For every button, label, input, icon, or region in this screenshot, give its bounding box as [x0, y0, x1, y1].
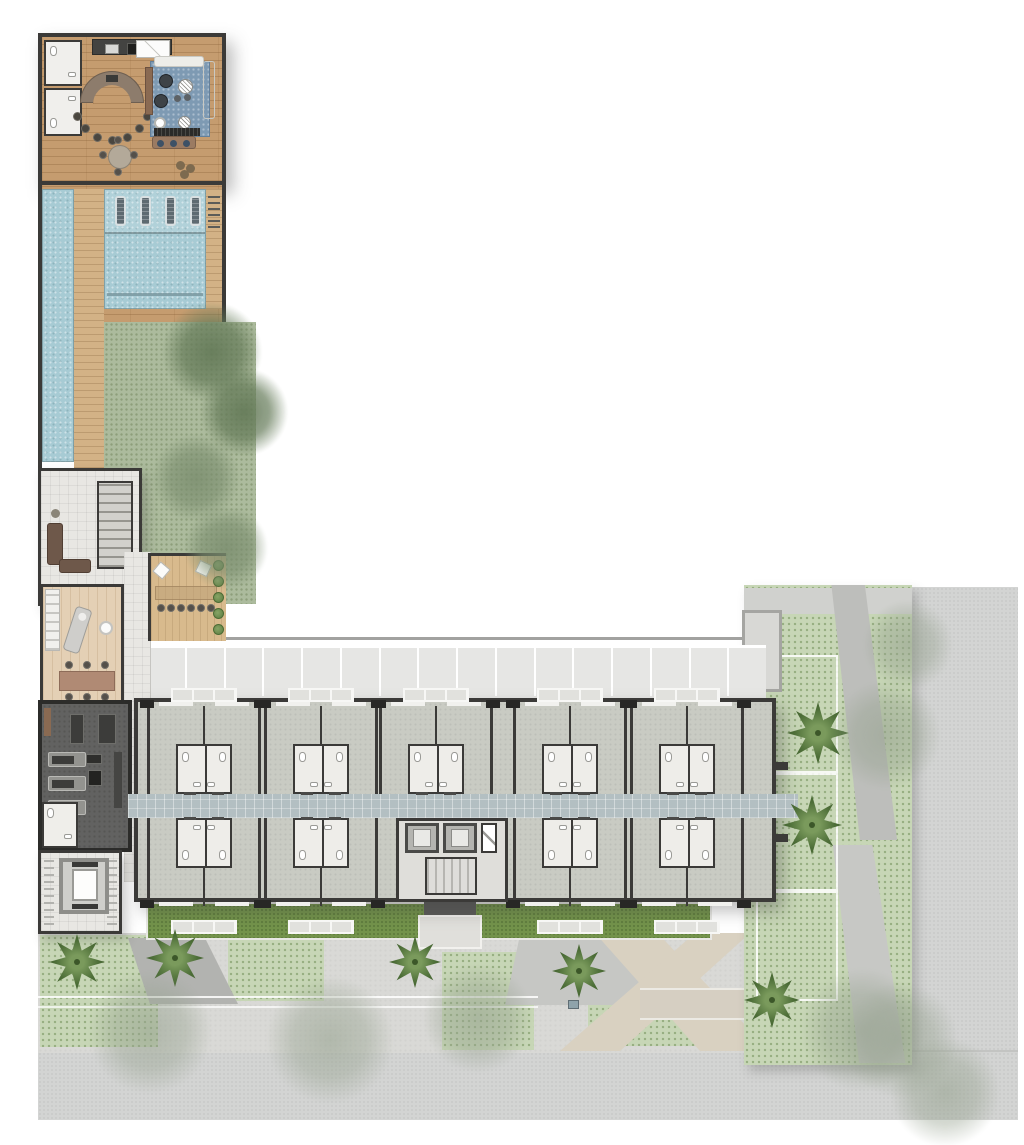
balcony-planter	[654, 920, 720, 934]
pouf	[180, 170, 189, 179]
unit-wall	[264, 818, 267, 906]
deck-walkway	[74, 189, 104, 482]
ottoman-striped	[178, 79, 193, 94]
sink-icon	[676, 825, 684, 830]
balcony-planter	[171, 920, 237, 934]
wall-notch	[774, 762, 788, 770]
chair	[101, 661, 109, 669]
residential-building	[134, 698, 776, 902]
unit-pair	[147, 706, 261, 794]
bar-stool	[93, 133, 102, 142]
unit-wall	[147, 706, 150, 794]
pool-lounger	[165, 196, 176, 226]
parking-stall	[729, 648, 766, 696]
street-right	[912, 587, 1018, 1118]
wall-pier	[257, 700, 271, 708]
unit-door	[667, 792, 679, 795]
wall-pier	[737, 900, 751, 908]
wall-pier	[486, 700, 500, 708]
gym-bathroom	[42, 802, 78, 848]
toilet-icon	[47, 808, 54, 818]
balcony-planter	[654, 688, 720, 702]
pool-lounger	[140, 196, 151, 226]
bar-stool	[123, 133, 132, 142]
bench-sofa	[152, 136, 196, 149]
window-segment	[581, 702, 615, 706]
unit-door	[550, 792, 562, 795]
bathroom-pair	[176, 818, 232, 868]
unit-door	[550, 817, 562, 820]
corridor-exit-east	[776, 794, 798, 818]
unit-pair	[264, 706, 378, 794]
wall-pier	[371, 900, 385, 908]
sink-icon	[439, 782, 447, 787]
terrace-deck	[148, 553, 226, 641]
balcony-planter	[288, 688, 354, 702]
cushion	[157, 140, 164, 147]
sink-icon	[690, 825, 698, 830]
building-core	[396, 818, 508, 902]
wall-pier	[623, 900, 637, 908]
bathroom-pair	[659, 744, 715, 794]
bathroom-pair	[408, 744, 464, 794]
bar-stool	[135, 124, 144, 133]
sink-icon	[425, 782, 433, 787]
unit-door	[578, 792, 590, 795]
sink-icon	[310, 825, 318, 830]
sink-icon	[559, 825, 567, 830]
sink-icon	[193, 782, 201, 787]
property-line	[204, 637, 744, 640]
unit-pair	[379, 706, 493, 794]
toilet-icon	[665, 850, 672, 860]
shrub-icon	[213, 576, 224, 587]
unit-door	[329, 817, 341, 820]
window-segment	[159, 902, 193, 906]
pillow	[77, 612, 87, 622]
elevator	[443, 823, 477, 853]
cushion	[170, 140, 177, 147]
window-segment	[581, 902, 615, 906]
bar-stool	[81, 124, 90, 133]
window-segment	[447, 702, 481, 706]
unit-wall	[264, 706, 267, 794]
pool-loungers	[105, 190, 205, 308]
unit-door	[444, 792, 456, 795]
chair	[65, 661, 73, 669]
sofa	[203, 61, 215, 119]
side-table	[51, 509, 60, 518]
shrub-icon	[213, 624, 224, 635]
cushion	[183, 140, 190, 147]
step-ticks	[44, 859, 54, 925]
toilet-icon	[299, 752, 306, 762]
utility-box	[568, 1000, 579, 1009]
unit-pair	[630, 818, 744, 906]
sink-icon	[207, 782, 215, 787]
window-segment	[159, 702, 193, 706]
toilet-icon	[414, 752, 421, 762]
wall-pier	[737, 700, 751, 708]
ball-chair	[99, 621, 113, 635]
unit-door	[695, 817, 707, 820]
toilet-icon	[585, 752, 592, 762]
massage-table	[62, 605, 92, 654]
dining-chair	[130, 151, 138, 159]
window-segment	[391, 702, 425, 706]
window-segment	[332, 702, 366, 706]
window-segment	[642, 902, 676, 906]
toilet-icon	[299, 850, 306, 860]
sink-icon	[324, 825, 332, 830]
pool-lounger	[190, 196, 201, 226]
wall-pier	[140, 700, 154, 708]
unit-wall	[624, 706, 627, 794]
parking-stall	[613, 648, 652, 696]
unit-pair	[513, 818, 627, 906]
pool-ladder	[208, 192, 220, 228]
unit-door	[184, 792, 196, 795]
unit-door	[667, 817, 679, 820]
treadmill	[48, 752, 86, 767]
unit-pair	[264, 818, 378, 906]
sink-icon	[676, 782, 684, 787]
terrace-shrubs	[151, 556, 226, 641]
shrub-icon	[213, 592, 224, 603]
main-pool	[104, 189, 206, 309]
unit-door	[184, 817, 196, 820]
window-segment	[215, 902, 249, 906]
sink-icon	[64, 834, 72, 839]
pouf	[176, 161, 185, 170]
unit-wall	[741, 818, 744, 906]
window-segment	[698, 902, 732, 906]
elevator-door	[72, 904, 98, 909]
unit-door	[695, 792, 707, 795]
window-segment	[332, 902, 366, 906]
yard-path-line	[38, 996, 538, 998]
balcony-planter	[171, 688, 237, 702]
unit-wall	[258, 818, 261, 906]
toilet-icon	[665, 752, 672, 762]
toilet-icon	[182, 752, 189, 762]
yard-path-line	[38, 1006, 538, 1008]
sink-icon	[690, 782, 698, 787]
dining-table-round	[108, 145, 132, 169]
toilet-icon	[702, 752, 709, 762]
gym-mat	[114, 752, 122, 808]
sink-icon	[573, 825, 581, 830]
window-segment	[525, 702, 559, 706]
lap-pool	[42, 189, 74, 462]
site-plan-canvas	[0, 0, 1024, 1145]
unit-wall	[630, 818, 633, 906]
unit-wall	[624, 818, 627, 906]
armchair	[154, 94, 168, 108]
toilet-icon	[219, 850, 226, 860]
shrub-icon	[213, 560, 224, 571]
core-staircase	[425, 857, 477, 895]
unit-wall	[375, 818, 378, 906]
window-segment	[276, 702, 310, 706]
sink-icon	[207, 825, 215, 830]
window-segment	[215, 702, 249, 706]
core-exit-path	[418, 915, 482, 949]
bathroom-pair	[659, 818, 715, 868]
unit-wall	[375, 706, 378, 794]
sink-icon	[573, 782, 581, 787]
lounge-room	[38, 33, 226, 185]
balcony-planter	[537, 688, 603, 702]
dining-chair	[114, 168, 122, 176]
unit-wall	[147, 818, 150, 906]
wall-pier	[623, 700, 637, 708]
elevator-shaft	[59, 858, 109, 914]
unit-wall	[513, 706, 516, 794]
unit-wall	[741, 706, 744, 794]
wall-pier	[506, 700, 520, 708]
balcony-planter	[288, 920, 354, 934]
chair	[83, 661, 91, 669]
yard-planting-bed	[228, 935, 324, 1001]
lobby-sofa	[59, 559, 91, 573]
sink-icon	[324, 782, 332, 787]
dining-chair	[114, 136, 122, 144]
unit-door	[212, 792, 224, 795]
window-segment	[276, 902, 310, 906]
bar-stool	[73, 112, 82, 121]
unit-door	[578, 817, 590, 820]
gym-room	[38, 700, 132, 852]
sink-icon	[193, 825, 201, 830]
pool-lounger	[115, 196, 126, 226]
sink-icon	[559, 782, 567, 787]
bathroom-pair	[293, 744, 349, 794]
elevator	[405, 823, 439, 853]
unit-pair	[147, 818, 261, 906]
bathroom-pair	[542, 744, 598, 794]
bathroom-pair	[293, 818, 349, 868]
elevator-door	[72, 862, 98, 867]
wall-pier	[506, 900, 520, 908]
toilet-icon	[548, 752, 555, 762]
core-exit-pavement	[424, 902, 476, 915]
sofa	[154, 56, 204, 67]
tv-console	[154, 128, 200, 136]
armchair	[159, 74, 173, 88]
shrub-icon	[213, 608, 224, 619]
unit-door	[416, 792, 428, 795]
unit-wall	[630, 706, 633, 794]
service-shaft	[481, 823, 497, 853]
balcony-planter	[403, 688, 469, 702]
pouf	[184, 94, 191, 101]
toilet-icon	[548, 850, 555, 860]
unit-wall	[379, 706, 382, 794]
unit-wall	[490, 706, 493, 794]
wall-notch	[774, 834, 788, 842]
window-segment	[525, 902, 559, 906]
dining-chair	[99, 151, 107, 159]
wall-right-upper	[222, 33, 226, 325]
window-segment	[642, 702, 676, 706]
elevator-cab	[72, 869, 98, 901]
wall-pier	[257, 900, 271, 908]
bathroom-pair	[176, 744, 232, 794]
pouf	[174, 95, 181, 102]
toilet-icon	[182, 850, 189, 860]
toilet-icon	[336, 850, 343, 860]
parking-stall	[497, 648, 536, 696]
balcony-planter	[537, 920, 603, 934]
treadmill	[48, 776, 86, 791]
unit-door	[329, 792, 341, 795]
unit-wall	[513, 818, 516, 906]
sink-icon	[310, 782, 318, 787]
bathroom-pair	[542, 818, 598, 868]
toilet-icon	[585, 850, 592, 860]
service-stair	[45, 589, 60, 651]
long-table	[59, 671, 115, 691]
wall-pier	[140, 900, 154, 908]
spa-room	[40, 584, 124, 714]
unit-wall	[258, 706, 261, 794]
wall-pier	[372, 700, 386, 708]
elevator-lobby	[38, 850, 122, 934]
unit-door	[301, 792, 313, 795]
unit-door	[301, 817, 313, 820]
window-segment	[698, 702, 732, 706]
toilet-icon	[336, 752, 343, 762]
pool-bench-line	[107, 293, 203, 296]
sideboard	[145, 67, 153, 115]
unit-pair	[630, 706, 744, 794]
unit-door	[212, 817, 224, 820]
toilet-icon	[702, 850, 709, 860]
garden-path-grid	[756, 891, 838, 1001]
toilet-icon	[219, 752, 226, 762]
unit-pair	[513, 706, 627, 794]
toilet-icon	[451, 752, 458, 762]
